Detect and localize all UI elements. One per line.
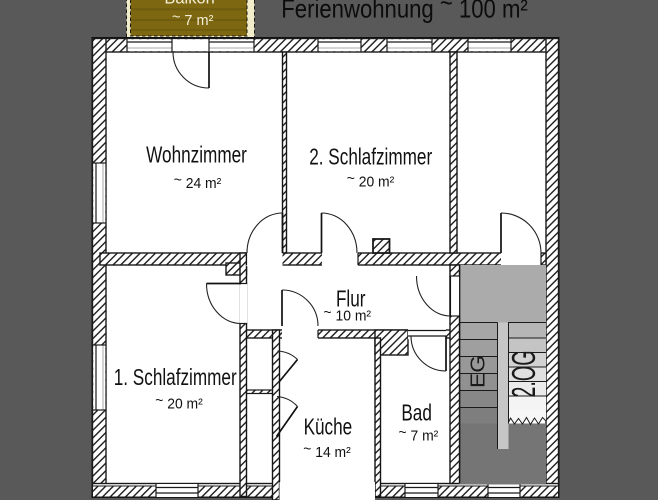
svg-text:2.OG: 2.OG [504,350,542,397]
svg-text:Balkon: Balkon [164,0,214,8]
svg-text:Küche: Küche [304,414,353,440]
svg-text:Ferienwohnung ~ 100 m²: Ferienwohnung ~ 100 m² [281,0,527,24]
svg-text:Wohnzimmer: Wohnzimmer [146,142,247,168]
svg-text:EG: EG [467,355,489,388]
svg-text:2. Schlafzimmer: 2. Schlafzimmer [309,144,432,170]
svg-text:1. Schlafzimmer: 1. Schlafzimmer [114,365,237,391]
svg-text:Bad: Bad [401,400,432,426]
